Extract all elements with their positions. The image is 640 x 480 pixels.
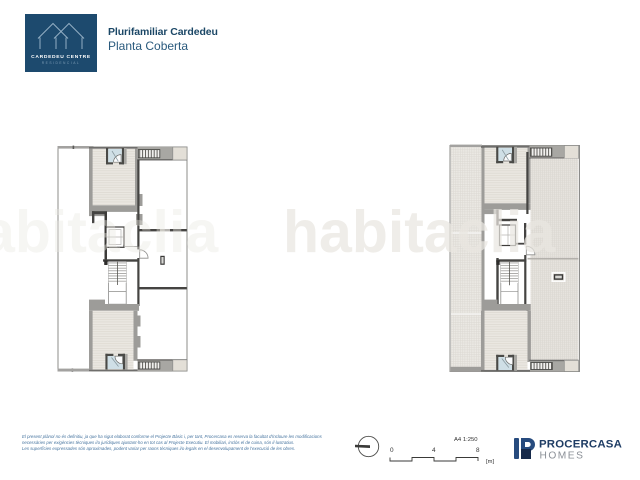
- svg-text:4: 4: [432, 447, 436, 454]
- svg-text:8: 8: [476, 447, 480, 454]
- svg-text:[m]: [m]: [486, 459, 494, 465]
- svg-text:HOMES: HOMES: [540, 451, 585, 462]
- svg-text:PROCERCASA: PROCERCASA: [539, 439, 622, 451]
- svg-text:0: 0: [390, 447, 394, 454]
